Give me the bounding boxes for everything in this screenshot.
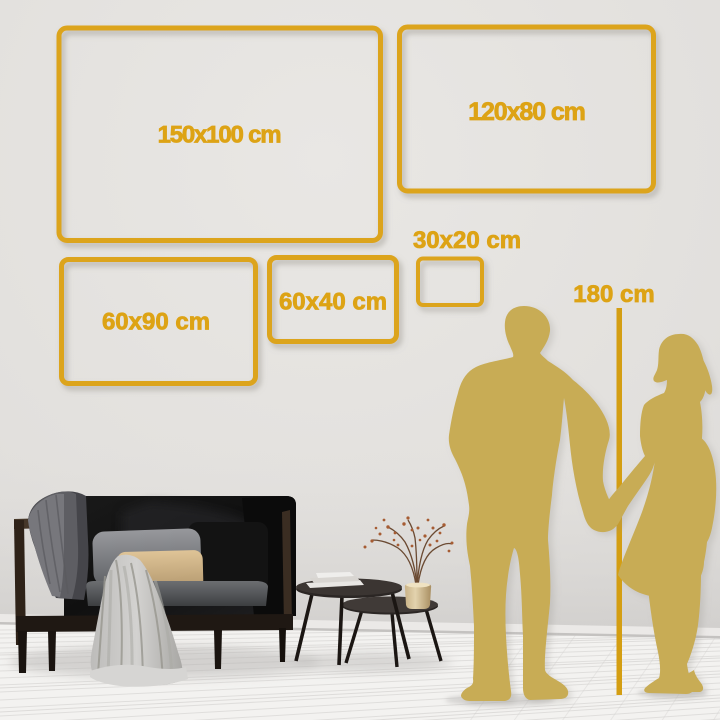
svg-text:120x80 cm: 120x80 cm: [468, 98, 585, 126]
svg-text:60x40 cm: 60x40 cm: [279, 289, 387, 316]
svg-text:180 cm: 180 cm: [573, 281, 654, 308]
svg-text:150x100 cm: 150x100 cm: [158, 122, 281, 149]
svg-text:30x20 cm: 30x20 cm: [413, 227, 521, 254]
svg-text:60x90 cm: 60x90 cm: [102, 309, 210, 336]
